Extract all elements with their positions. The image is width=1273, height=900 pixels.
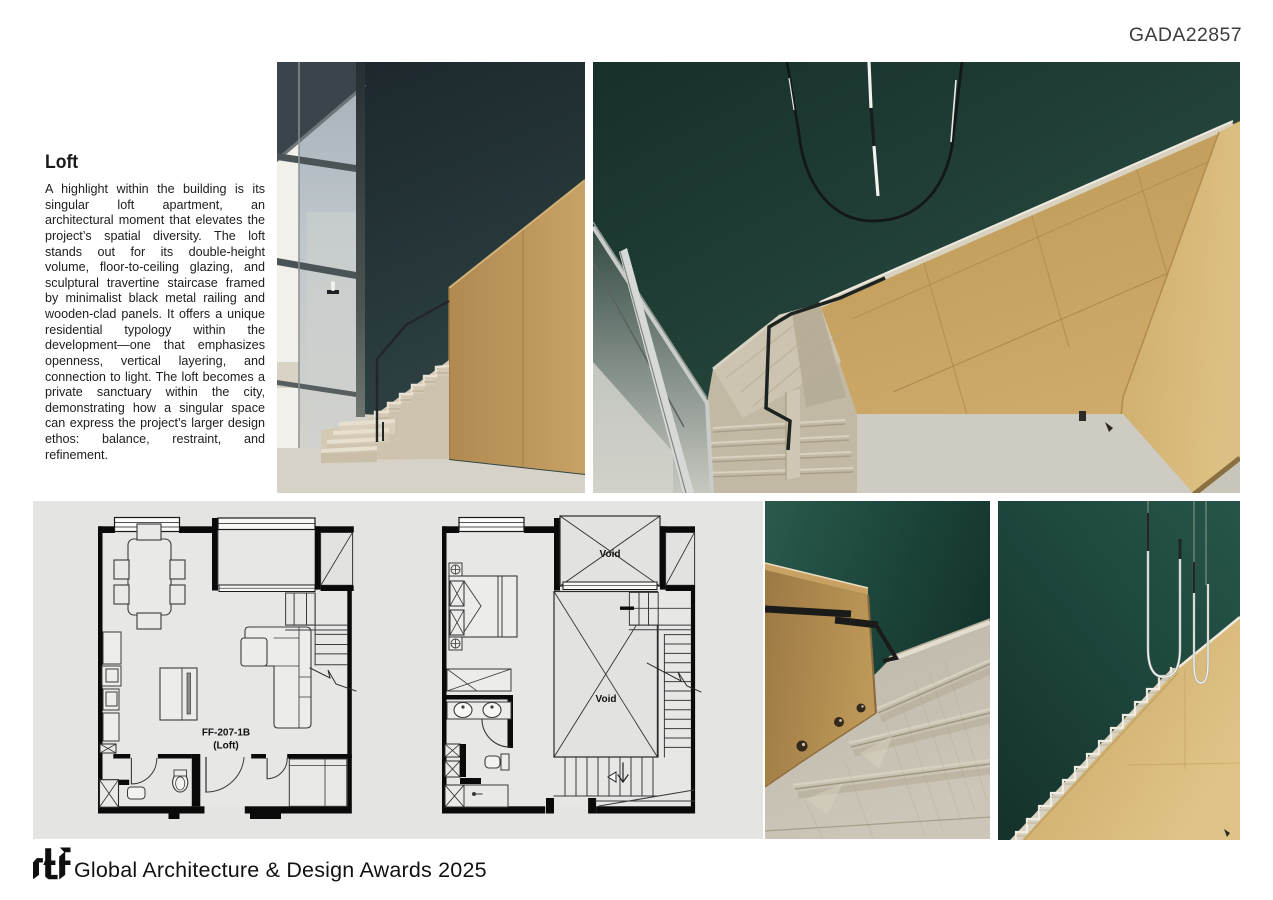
svg-text:Void: Void [600, 549, 621, 560]
svg-text:Void: Void [596, 694, 617, 705]
svg-text:FF-207-1B: FF-207-1B [202, 728, 250, 739]
svg-text:(Loft): (Loft) [213, 741, 239, 752]
